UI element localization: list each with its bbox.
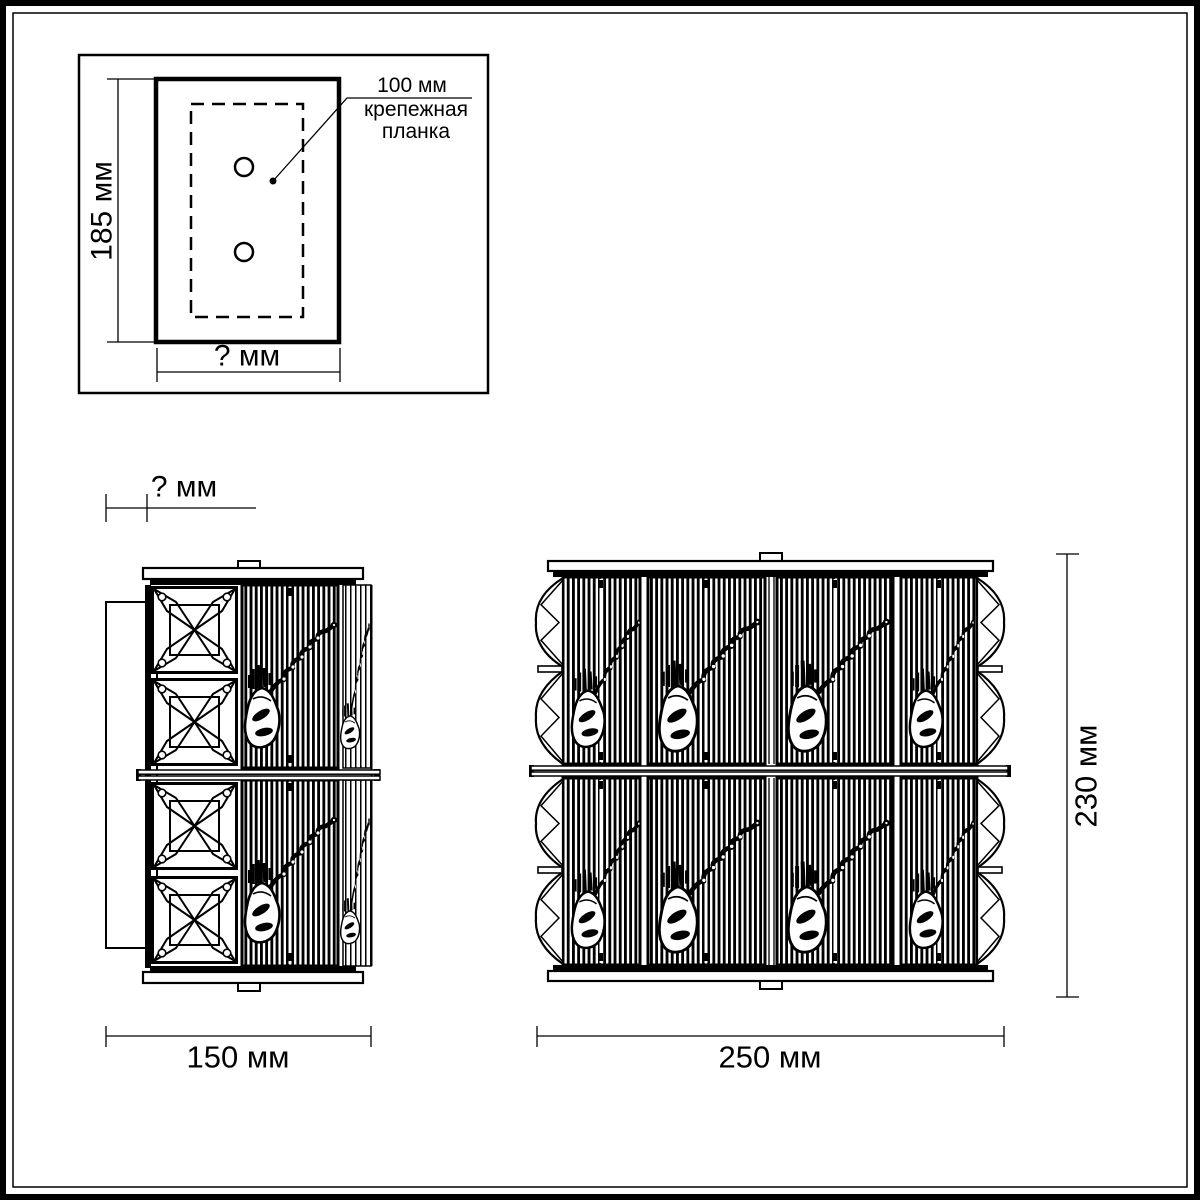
side-width-label: 150 мм <box>187 1042 290 1075</box>
front-view-drawing <box>529 553 1079 1047</box>
backplate-height-label: 185 мм <box>86 161 118 261</box>
front-height-label: 230 мм <box>1071 725 1104 828</box>
line-art <box>0 0 1200 1200</box>
mounting-hole-bottom <box>235 243 253 261</box>
backplate-width-label: ? мм <box>214 340 280 372</box>
plate-caption-label: крепежная планка <box>356 99 476 143</box>
side-view-drawing <box>106 494 380 1047</box>
drawing-sheet: 100 мм крепежная планка 185 мм ? мм ? мм… <box>0 0 1200 1200</box>
side-depth-label: ? мм <box>151 471 217 503</box>
mounting-hole-top <box>235 158 253 176</box>
front-width-label: 250 мм <box>719 1042 822 1075</box>
plate-width-label: 100 мм <box>377 75 447 97</box>
backplate-outline <box>156 79 339 342</box>
edge-crystal-strip <box>536 578 563 964</box>
